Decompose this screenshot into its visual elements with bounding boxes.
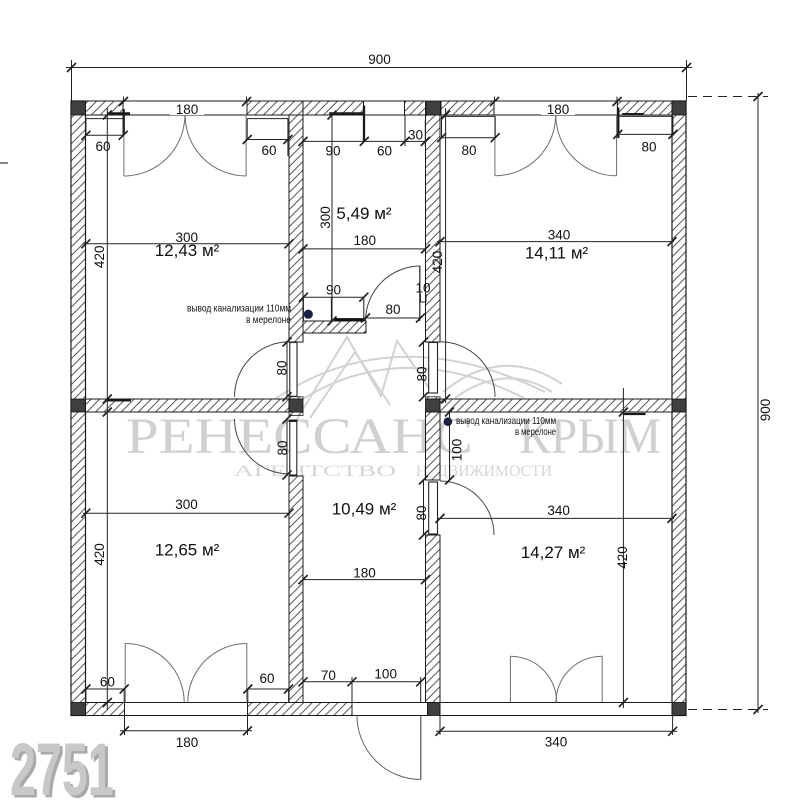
svg-text:80: 80 bbox=[385, 302, 400, 317]
svg-text:100: 100 bbox=[374, 667, 397, 682]
svg-text:60: 60 bbox=[95, 139, 110, 154]
svg-text:80: 80 bbox=[641, 140, 656, 155]
svg-text:в мерелоне: в мерелоне bbox=[515, 426, 556, 438]
svg-text:вывод канализации 110мм: вывод канализации 110мм bbox=[187, 303, 291, 315]
svg-text:340: 340 bbox=[545, 734, 568, 749]
svg-text:90: 90 bbox=[325, 144, 340, 159]
svg-text:100: 100 bbox=[450, 439, 465, 462]
svg-text:30: 30 bbox=[408, 128, 423, 143]
svg-text:АГЕНТСТВО: АГЕНТСТВО bbox=[234, 463, 396, 480]
svg-text:900: 900 bbox=[368, 52, 391, 67]
svg-text:80: 80 bbox=[461, 143, 476, 158]
svg-text:60: 60 bbox=[377, 144, 392, 159]
svg-text:60: 60 bbox=[261, 143, 276, 158]
svg-text:180: 180 bbox=[176, 102, 199, 117]
svg-text:340: 340 bbox=[548, 228, 571, 243]
svg-text:60: 60 bbox=[100, 674, 115, 689]
svg-text:80: 80 bbox=[275, 360, 290, 375]
svg-text:2751: 2751 bbox=[10, 729, 114, 806]
svg-text:10: 10 bbox=[415, 280, 430, 295]
svg-text:14,27 м²: 14,27 м² bbox=[521, 543, 586, 562]
svg-text:420: 420 bbox=[430, 251, 445, 274]
svg-text:180: 180 bbox=[547, 102, 570, 117]
svg-text:70: 70 bbox=[321, 668, 336, 683]
svg-text:900: 900 bbox=[758, 399, 773, 422]
svg-text:80: 80 bbox=[415, 366, 430, 381]
svg-text:80: 80 bbox=[275, 440, 290, 455]
svg-text:340: 340 bbox=[547, 503, 570, 518]
svg-text:12,65 м²: 12,65 м² bbox=[155, 541, 220, 560]
svg-text:12,43 м²: 12,43 м² bbox=[155, 241, 220, 260]
svg-text:180: 180 bbox=[176, 735, 199, 750]
svg-text:420: 420 bbox=[92, 246, 107, 269]
svg-text:10,49 м²: 10,49 м² bbox=[332, 500, 397, 519]
svg-text:5,49 м²: 5,49 м² bbox=[336, 204, 391, 223]
svg-text:60: 60 bbox=[259, 671, 274, 686]
svg-text:300: 300 bbox=[318, 206, 333, 229]
svg-text:в мерелоне: в мерелоне bbox=[246, 314, 291, 326]
svg-text:90: 90 bbox=[326, 283, 341, 298]
svg-text:180: 180 bbox=[353, 565, 376, 580]
svg-text:14,11 м²: 14,11 м² bbox=[525, 244, 589, 263]
svg-text:РЕНЕССАНС: РЕНЕССАНС bbox=[126, 409, 473, 465]
svg-text:80: 80 bbox=[414, 505, 429, 520]
svg-text:180: 180 bbox=[354, 233, 377, 248]
svg-text:300: 300 bbox=[175, 497, 198, 512]
svg-text:420: 420 bbox=[615, 546, 630, 569]
svg-text:420: 420 bbox=[92, 543, 107, 566]
